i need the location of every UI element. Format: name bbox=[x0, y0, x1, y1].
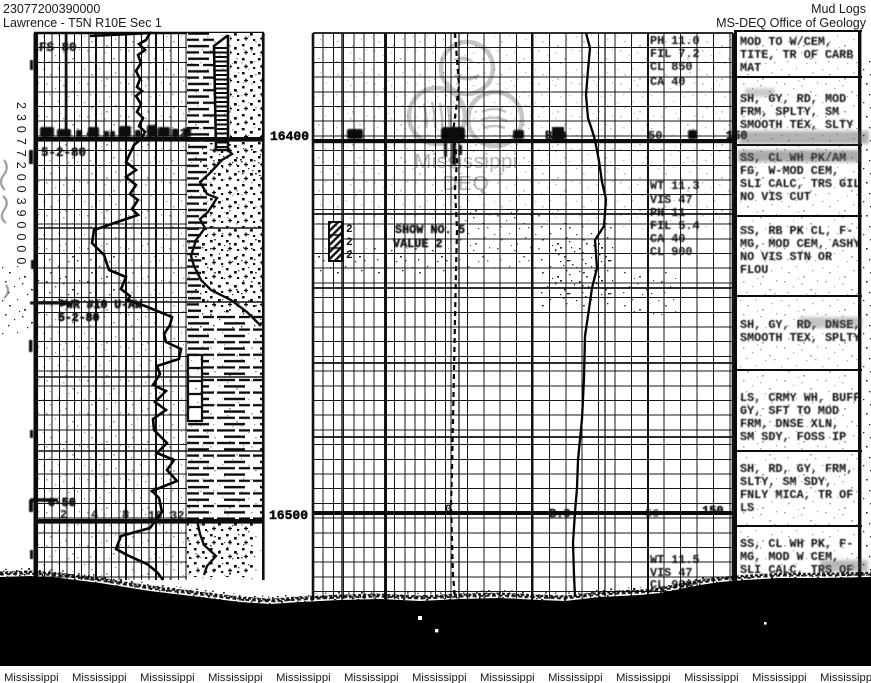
svg-text:MS-DEQ Office of Geology: MS-DEQ Office of Geology bbox=[716, 16, 867, 30]
svg-text:Mississippi: Mississippi bbox=[276, 672, 331, 683]
svg-text:0: 0 bbox=[445, 504, 452, 516]
svg-text:50: 50 bbox=[645, 507, 659, 521]
svg-text:23077200390000: 23077200390000 bbox=[3, 2, 100, 16]
svg-text:Mississippi: Mississippi bbox=[344, 672, 399, 683]
svg-text:Mississippi: Mississippi bbox=[208, 672, 263, 683]
svg-text:WT 11.5: WT 11.5 bbox=[650, 553, 700, 567]
svg-text:Mississippi: Mississippi bbox=[684, 672, 739, 683]
svg-text:CL 900: CL 900 bbox=[650, 245, 692, 259]
svg-text:Mississippi: Mississippi bbox=[480, 672, 535, 683]
svg-text:23077200390000: 23077200390000 bbox=[14, 102, 28, 269]
svg-text:CA 40: CA 40 bbox=[650, 232, 685, 246]
svg-text:Mud Logs: Mud Logs bbox=[811, 2, 866, 16]
svg-text:Mississippi: Mississippi bbox=[72, 672, 127, 683]
svg-text:Lawrence - T5N R10E Sec 1: Lawrence - T5N R10E Sec 1 bbox=[3, 16, 162, 30]
svg-text:Mississippi: Mississippi bbox=[412, 672, 467, 683]
svg-text:B.0: B.0 bbox=[549, 507, 571, 521]
svg-text:Mississippi: Mississippi bbox=[548, 672, 603, 683]
svg-text:Mississippi: Mississippi bbox=[4, 672, 59, 683]
svg-text:2: 2 bbox=[346, 237, 353, 249]
svg-text:16400: 16400 bbox=[270, 129, 309, 144]
svg-text:150: 150 bbox=[702, 504, 724, 518]
svg-text:Mississippi: Mississippi bbox=[140, 672, 195, 683]
svg-text:16500: 16500 bbox=[269, 508, 308, 523]
svg-text:Mississippi: Mississippi bbox=[820, 672, 871, 683]
svg-text:Mississippi: Mississippi bbox=[616, 672, 671, 683]
svg-text:Mississippi: Mississippi bbox=[752, 672, 807, 683]
